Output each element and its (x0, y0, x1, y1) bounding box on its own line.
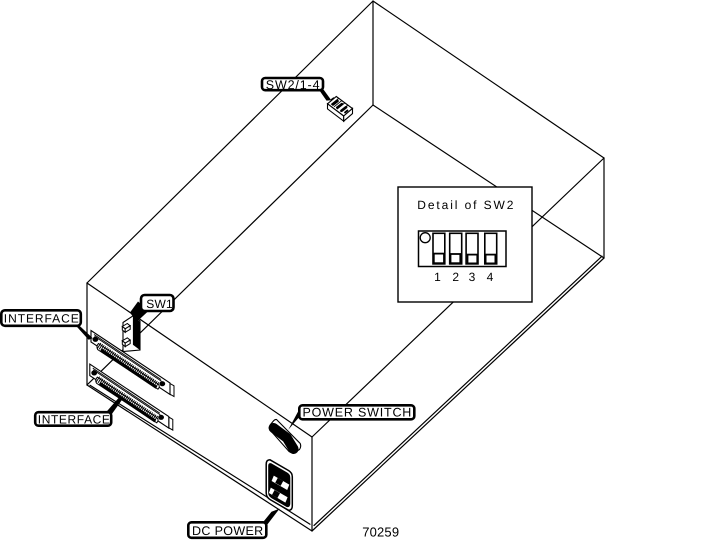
svg-text:SW2/1-4: SW2/1-4 (266, 78, 321, 92)
svg-text:Detail of SW2: Detail of SW2 (417, 198, 515, 212)
svg-text:POWER SWITCH: POWER SWITCH (303, 406, 413, 420)
svg-text:INTERFACE: INTERFACE (4, 312, 80, 326)
svg-text:3: 3 (469, 270, 476, 284)
svg-text:1: 1 (434, 270, 441, 284)
svg-text:DC POWER: DC POWER (192, 524, 264, 538)
svg-text:70259: 70259 (362, 525, 399, 540)
svg-text:4: 4 (487, 270, 494, 284)
svg-text:2: 2 (452, 270, 459, 284)
svg-text:SW1: SW1 (146, 297, 173, 311)
svg-text:INTERFACE: INTERFACE (38, 412, 111, 426)
